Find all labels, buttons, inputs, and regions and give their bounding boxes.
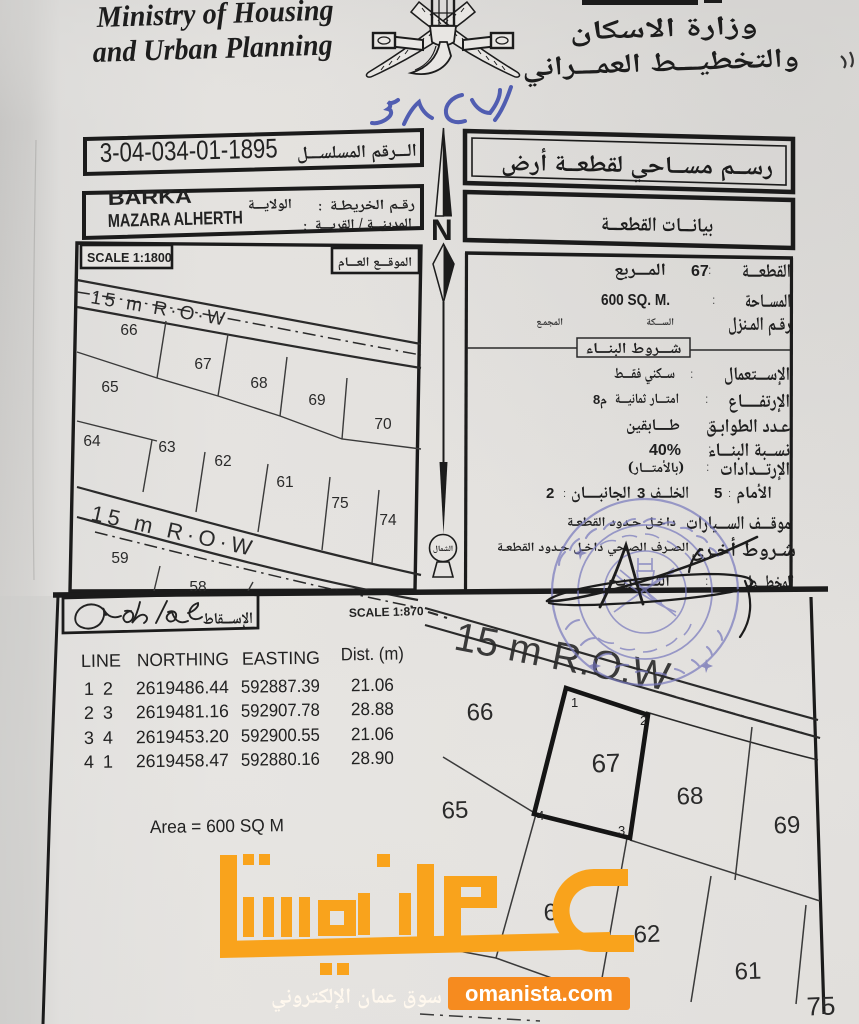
svg-text:28.90: 28.90 [351, 748, 394, 769]
svg-text:68: 68 [676, 783, 704, 811]
svg-text::: : [705, 392, 708, 406]
svg-text::: : [708, 263, 711, 277]
svg-text:62: 62 [633, 921, 661, 949]
svg-text:3: 3 [103, 703, 113, 723]
svg-text::: : [728, 488, 731, 500]
svg-text:592887.39: 592887.39 [241, 676, 320, 697]
svg-text:2: 2 [546, 485, 554, 502]
svg-text:2619481.16: 2619481.16 [136, 701, 229, 722]
svg-text:62: 62 [214, 453, 231, 470]
svg-text:592907.78: 592907.78 [241, 700, 320, 721]
svg-text:NORTHING: NORTHING [137, 649, 229, 670]
svg-text:66: 66 [120, 322, 137, 339]
svg-text:21.06: 21.06 [351, 724, 394, 745]
svg-text:4: 4 [84, 752, 94, 772]
svg-text:4: 4 [103, 728, 113, 748]
svg-text:2: 2 [103, 679, 113, 699]
svg-text:28.88: 28.88 [351, 699, 394, 720]
svg-text:3-04-034-01-1895: 3-04-034-01-1895 [99, 133, 278, 168]
svg-text:64: 64 [83, 433, 101, 450]
svg-text:59: 59 [111, 550, 128, 567]
svg-text::: : [712, 293, 715, 307]
svg-text:2619453.20: 2619453.20 [136, 726, 229, 747]
svg-text:2619486.44: 2619486.44 [136, 677, 229, 698]
svg-text::: : [708, 418, 711, 432]
svg-text:2: 2 [84, 703, 94, 723]
svg-text:N: N [431, 214, 453, 247]
svg-text:21.06: 21.06 [351, 675, 394, 696]
svg-text::: : [708, 442, 711, 456]
svg-text:3: 3 [618, 823, 625, 838]
svg-text:SCALE 1:870: SCALE 1:870 [349, 604, 424, 620]
svg-text:Dist. (m): Dist. (m) [341, 643, 404, 664]
svg-text:5: 5 [714, 485, 722, 502]
svg-text:LINE: LINE [81, 650, 121, 671]
svg-text:61: 61 [734, 958, 762, 986]
svg-text:Area = 600 SQ M: Area = 600 SQ M [150, 815, 284, 837]
svg-text:67: 67 [194, 356, 211, 373]
svg-text:2619458.47: 2619458.47 [136, 750, 229, 771]
svg-text:592900.55: 592900.55 [241, 725, 320, 746]
svg-text:65: 65 [441, 797, 469, 825]
svg-text::: : [690, 367, 693, 381]
svg-text::: : [706, 460, 709, 474]
svg-text:4: 4 [537, 808, 544, 823]
svg-text:66: 66 [466, 699, 494, 727]
svg-text:70: 70 [374, 416, 392, 433]
svg-text::: : [705, 574, 708, 588]
svg-text:2: 2 [640, 713, 647, 728]
svg-text:592880.16: 592880.16 [241, 749, 320, 770]
svg-text:1: 1 [571, 695, 578, 710]
svg-text:8: 8 [593, 392, 600, 407]
svg-text:69: 69 [308, 392, 325, 409]
svg-text:65: 65 [101, 379, 118, 396]
svg-text:67: 67 [691, 263, 709, 280]
svg-text:67: 67 [591, 748, 621, 779]
svg-text:75: 75 [331, 495, 348, 512]
svg-text:MAZARA ALHERTH: MAZARA ALHERTH [108, 206, 244, 231]
svg-text:1: 1 [84, 679, 94, 699]
svg-text:omanista.com: omanista.com [465, 981, 613, 1006]
svg-text:40%: 40% [649, 442, 681, 459]
svg-text:74: 74 [379, 512, 397, 529]
svg-text:SCALE 1:1800: SCALE 1:1800 [87, 251, 172, 265]
svg-text::: : [563, 488, 566, 500]
svg-text:EASTING: EASTING [242, 648, 320, 669]
svg-text:63: 63 [158, 439, 175, 456]
svg-text:75: 75 [806, 991, 836, 1022]
svg-text:68: 68 [250, 375, 267, 392]
svg-text:600 SQ. M.: 600 SQ. M. [601, 292, 670, 309]
svg-text:61: 61 [276, 474, 293, 491]
svg-text:BARKA: BARKA [108, 186, 193, 210]
svg-text:69: 69 [773, 812, 801, 840]
svg-text:1: 1 [103, 752, 113, 772]
svg-text:3: 3 [84, 728, 94, 748]
